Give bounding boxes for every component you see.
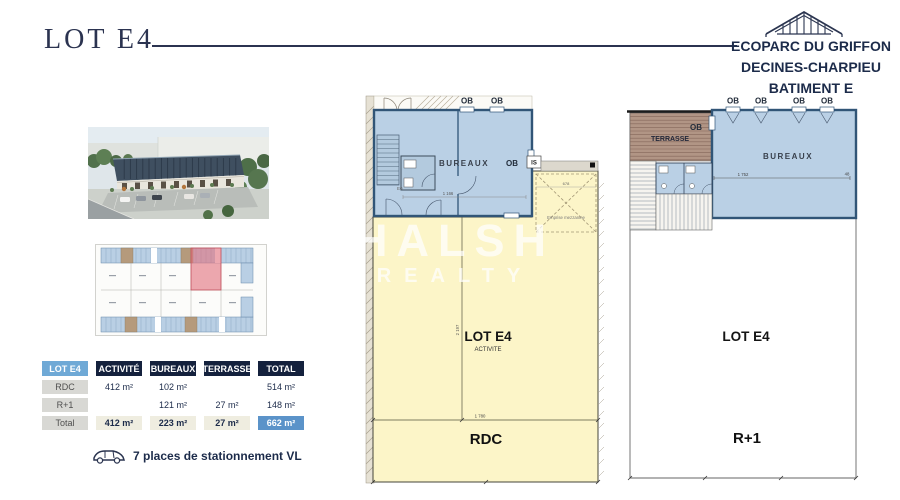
row-label-total: Total [42,416,88,430]
site-key-plan [95,244,267,336]
cell-r1-activite [96,398,142,412]
cell-rdc-bureaux: 102 m² [150,380,196,394]
table-header-total: TOTAL [258,361,304,376]
rdc-lot-label: LOT E4 [464,329,512,344]
brand-line-2: DECINES-CHARPIEU [706,57,900,78]
r1-floorplan: TERRASSE OB OB OB OB OB BUREAUX 1 752 48 [618,90,866,488]
title-rule [152,45,737,47]
rdc-floor-label: RDC [470,431,503,448]
r1-bureaux-room [712,110,856,218]
brand-line-1: ECOPARC DU GRIFFON [706,36,900,57]
table-header-terrasse: TERRASSE [204,361,250,376]
brochure-page: LOT E4 ECOPARC DU GRIFFON DECINES-CHARPI… [0,0,900,500]
r1-stair-left [630,161,656,230]
r1-floor-label: R+1 [733,430,761,447]
aerial-photo [88,127,269,219]
roof-truss-logo-icon [763,5,845,39]
rdc-ob-label-1: OB [461,97,473,106]
table-header-bureaux: BUREAUX [150,361,196,376]
column-marker [590,163,595,168]
page-title: LOT E4 [44,24,154,56]
r1-ob-label-5: OB [690,123,702,132]
r1-lot-label: LOT E4 [722,329,770,344]
cell-r1-total: 148 m² [258,398,304,412]
r1-bureaux-label: BUREAUX [763,152,813,161]
cell-total-terrasse: 27 m² [204,416,250,430]
rdc-dim-bureaux: 1 166 [443,191,454,196]
rdc-bureaux-label: BUREAUX [439,159,489,168]
rdc-dim-annex: 678 [563,181,570,186]
cell-r1-terrasse: 27 m² [204,398,250,412]
cell-total-activite: 412 m² [96,416,142,430]
cell-rdc-terrasse [204,380,250,394]
surface-table: LOT E4 ACTIVITÉ BUREAUX TERRASSE TOTAL R… [42,361,304,430]
row-label-r1: R+1 [42,398,88,412]
r1-dim-right: 48 [845,172,850,177]
table-header-lot: LOT E4 [42,361,88,376]
cell-rdc-activite: 412 m² [96,380,142,394]
table-header-activite: ACTIVITÉ [96,361,142,376]
rdc-is-label: IS [531,161,537,167]
highlighted-lot-e4 [191,248,221,290]
rdc-zone-label: ACTIVITE [474,347,501,353]
staircase [377,135,399,185]
cell-r1-bureaux: 121 m² [150,398,196,412]
parking-label: 7 places de stationnement VL [133,449,302,463]
r1-ob-label-2: OB [755,97,767,106]
rdc-ob-label-3: OB [506,159,518,168]
rdc-stair-label: E0 [397,186,403,191]
r1-ob-label-4: OB [821,97,833,106]
cell-total-bureaux: 223 m² [150,416,196,430]
r1-ob-label-3: OB [793,97,805,106]
cell-rdc-total: 514 m² [258,380,304,394]
r1-ob-label-1: OB [727,97,739,106]
rdc-dim-width: 1 780 [475,414,486,419]
r1-dim-bureaux: 1 752 [738,172,749,177]
rdc-dim-height: 2 197 [455,324,460,335]
car-icon [90,446,128,466]
r1-wc-rooms [656,163,712,194]
mezzanine-label: Emprise mezzanine [547,215,585,220]
rdc-floorplan: E0 BUREAUX 1 166 OB OB OB IS 678 Emprise… [360,90,608,488]
cell-total-total: 662 m² [258,416,304,430]
party-wall-hatch-right [598,183,604,477]
row-label-rdc: RDC [42,380,88,394]
terrasse-label: TERRASSE [651,136,689,143]
rdc-ob-label-2: OB [491,97,503,106]
wc-room [401,156,435,190]
